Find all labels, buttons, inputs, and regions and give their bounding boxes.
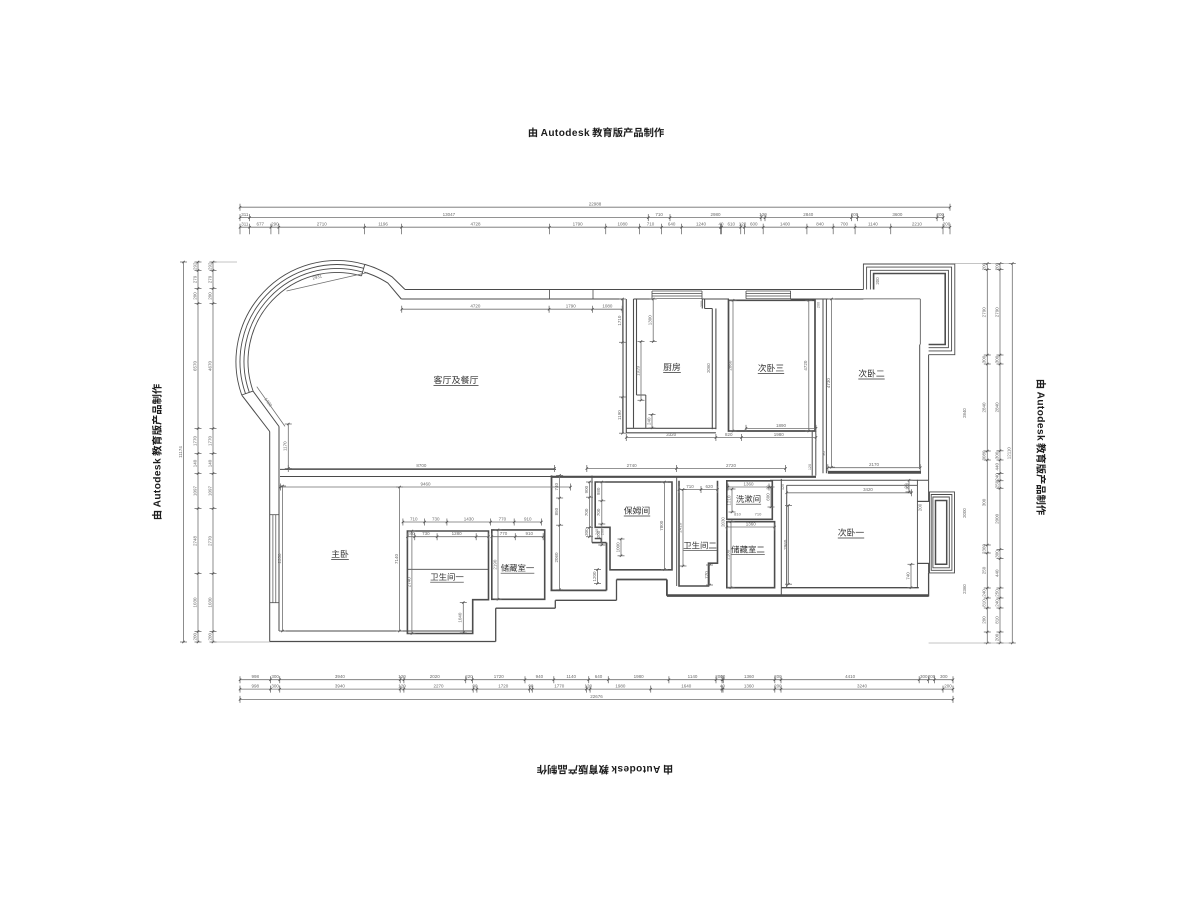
svg-text:440: 440: [994, 462, 999, 470]
svg-text:4720: 4720: [470, 304, 481, 309]
svg-text:90: 90: [472, 684, 478, 689]
svg-text:240: 240: [646, 417, 651, 425]
svg-text:4728: 4728: [470, 222, 481, 227]
svg-text:22676: 22676: [590, 694, 603, 699]
svg-text:1710: 1710: [617, 315, 622, 326]
svg-text:200: 200: [918, 503, 923, 511]
svg-text:120: 120: [398, 684, 406, 689]
svg-text:710: 710: [410, 516, 418, 521]
svg-text:1300: 1300: [648, 315, 653, 326]
svg-text:2350: 2350: [277, 553, 282, 564]
svg-text:600: 600: [750, 222, 758, 227]
svg-text:1640: 1640: [681, 684, 692, 689]
svg-text:90: 90: [821, 451, 826, 456]
svg-text:1140: 1140: [688, 674, 698, 679]
svg-text:640: 640: [595, 674, 603, 679]
svg-text:292: 292: [192, 262, 197, 270]
svg-text:998: 998: [251, 674, 259, 679]
svg-text:700: 700: [584, 508, 589, 516]
svg-text:13047: 13047: [443, 212, 456, 217]
svg-text:7140: 7140: [394, 553, 399, 564]
svg-text:240: 240: [982, 589, 987, 597]
svg-text:90: 90: [766, 486, 770, 490]
svg-text:200: 200: [774, 684, 782, 689]
svg-text:300: 300: [940, 674, 948, 679]
svg-text:120: 120: [584, 684, 592, 689]
svg-text:200: 200: [817, 302, 821, 308]
svg-text:1280: 1280: [452, 531, 463, 536]
svg-text:2060: 2060: [554, 552, 559, 563]
svg-text:120: 120: [808, 464, 812, 470]
svg-text:40: 40: [720, 684, 726, 689]
svg-text:200: 200: [936, 212, 944, 217]
svg-text:2170: 2170: [869, 462, 880, 467]
svg-text:200: 200: [207, 633, 212, 641]
svg-text:200: 200: [994, 633, 999, 641]
svg-text:300: 300: [994, 550, 999, 558]
svg-text:810: 810: [982, 599, 987, 607]
svg-text:700: 700: [596, 508, 601, 516]
svg-text:1000: 1000: [615, 542, 620, 553]
svg-text:2710: 2710: [317, 222, 328, 227]
svg-text:2860: 2860: [727, 360, 732, 371]
svg-text:1210: 1210: [726, 495, 731, 506]
svg-text:12110: 12110: [1007, 447, 1012, 460]
svg-text:2100: 2100: [725, 549, 730, 560]
svg-text:810: 810: [734, 512, 741, 517]
svg-text:2740: 2740: [627, 463, 638, 468]
svg-text:2720: 2720: [726, 463, 737, 468]
svg-text:1240: 1240: [696, 222, 707, 227]
svg-text:300: 300: [271, 684, 279, 689]
svg-text:250: 250: [994, 589, 999, 597]
svg-text:1080: 1080: [617, 222, 628, 227]
svg-text:300: 300: [994, 451, 999, 459]
svg-text:1200: 1200: [592, 571, 597, 582]
svg-text:1030: 1030: [207, 597, 212, 608]
svg-text:3080: 3080: [982, 450, 987, 461]
svg-text:710: 710: [755, 512, 762, 517]
svg-text:998: 998: [251, 684, 259, 689]
svg-text:3420: 3420: [863, 487, 873, 492]
svg-text:200: 200: [700, 301, 704, 307]
svg-text:610: 610: [727, 222, 735, 227]
svg-text:279: 279: [192, 275, 197, 283]
svg-text:3240: 3240: [857, 684, 868, 689]
svg-text:2210: 2210: [912, 222, 923, 227]
svg-text:1140: 1140: [868, 222, 878, 227]
svg-text:1360: 1360: [743, 481, 754, 486]
svg-text:1980: 1980: [634, 674, 645, 679]
svg-text:770: 770: [499, 516, 507, 521]
svg-text:40: 40: [720, 674, 726, 679]
svg-text:2840: 2840: [803, 212, 814, 217]
svg-text:200: 200: [774, 674, 782, 679]
svg-text:1770: 1770: [192, 435, 197, 446]
svg-text:1080: 1080: [602, 304, 613, 309]
svg-text:620: 620: [705, 484, 713, 489]
svg-text:40: 40: [718, 222, 724, 227]
svg-text:640: 640: [668, 222, 676, 227]
svg-text:740: 740: [905, 572, 910, 580]
svg-text:2360: 2360: [982, 543, 987, 554]
svg-text:770: 770: [704, 571, 709, 579]
svg-text:2000: 2000: [962, 508, 967, 518]
svg-text:2980: 2980: [710, 212, 721, 217]
svg-text:1770: 1770: [554, 684, 565, 689]
svg-text:2000: 2000: [994, 513, 999, 524]
svg-text:1720: 1720: [494, 674, 505, 679]
svg-text:200: 200: [875, 277, 880, 285]
svg-text:200: 200: [192, 292, 197, 300]
svg-text:1140: 1140: [566, 674, 576, 679]
svg-text:240: 240: [994, 473, 999, 481]
svg-text:2060: 2060: [706, 363, 711, 373]
svg-text:1920: 1920: [635, 365, 640, 376]
svg-text:22988: 22988: [589, 202, 602, 207]
svg-text:1790: 1790: [566, 304, 577, 309]
svg-text:810: 810: [994, 616, 999, 624]
svg-text:2360: 2360: [962, 584, 967, 594]
svg-text:677: 677: [256, 222, 264, 227]
svg-text:940: 940: [536, 674, 544, 679]
svg-text:240: 240: [994, 599, 999, 607]
svg-text:770: 770: [500, 531, 508, 536]
svg-text:820: 820: [725, 432, 733, 437]
svg-text:200: 200: [596, 530, 601, 538]
svg-text:440: 440: [994, 569, 999, 577]
svg-text:1360: 1360: [746, 521, 757, 526]
svg-text:200: 200: [943, 222, 951, 227]
svg-text:120: 120: [781, 484, 785, 490]
svg-text:300: 300: [982, 498, 987, 506]
svg-text:120: 120: [398, 674, 406, 679]
svg-text:910: 910: [524, 516, 532, 521]
svg-text:1040: 1040: [458, 612, 463, 623]
svg-text:2790: 2790: [982, 307, 987, 318]
svg-text:730: 730: [422, 531, 430, 536]
svg-text:140: 140: [207, 459, 212, 467]
svg-text:1030: 1030: [192, 597, 197, 608]
svg-text:3940: 3940: [335, 684, 346, 689]
svg-text:740: 740: [554, 482, 559, 490]
svg-text:710: 710: [655, 212, 663, 217]
svg-text:1980: 1980: [774, 432, 785, 437]
svg-text:4410: 4410: [845, 674, 856, 679]
svg-text:90: 90: [903, 483, 908, 489]
svg-text:2960: 2960: [783, 539, 788, 550]
svg-text:250: 250: [982, 566, 987, 574]
svg-text:1170: 1170: [283, 441, 288, 451]
svg-text:300: 300: [982, 355, 987, 363]
svg-text:3940: 3940: [335, 674, 346, 679]
svg-text:292: 292: [207, 262, 212, 270]
svg-text:120: 120: [739, 222, 747, 227]
svg-text:200: 200: [192, 633, 197, 641]
svg-text:2270: 2270: [433, 684, 444, 689]
svg-text:300: 300: [584, 528, 589, 536]
svg-text:1720: 1720: [498, 684, 509, 689]
svg-text:200: 200: [207, 292, 212, 300]
svg-text:Autodesk: Autodesk: [541, 128, 590, 139]
svg-text:90: 90: [528, 684, 534, 689]
svg-text:2190: 2190: [492, 559, 497, 570]
svg-text:1400: 1400: [780, 222, 791, 227]
svg-text:1770: 1770: [207, 435, 212, 446]
svg-text:200: 200: [944, 684, 952, 689]
svg-text:9460: 9460: [420, 481, 431, 486]
svg-text:1360: 1360: [744, 684, 755, 689]
svg-text:2790: 2790: [994, 307, 999, 318]
svg-text:11174: 11174: [178, 446, 183, 458]
svg-text:3600: 3600: [892, 212, 903, 217]
svg-text:200: 200: [982, 616, 987, 624]
svg-text:300: 300: [271, 674, 279, 679]
svg-text:140: 140: [192, 459, 197, 467]
svg-text:1790: 1790: [573, 222, 584, 227]
svg-text:910: 910: [525, 531, 533, 536]
svg-text:1097: 1097: [192, 485, 197, 496]
svg-text:2840: 2840: [962, 408, 967, 418]
svg-text:600: 600: [765, 493, 770, 501]
svg-text:311: 311: [241, 212, 249, 217]
svg-text:710: 710: [686, 484, 694, 489]
svg-text:Autodesk: Autodesk: [1034, 392, 1045, 441]
svg-text:2740: 2740: [406, 577, 411, 588]
svg-text:300: 300: [994, 355, 999, 363]
svg-text:279: 279: [207, 275, 212, 283]
svg-text:4720: 4720: [803, 360, 808, 371]
svg-text:8700: 8700: [416, 463, 427, 468]
svg-text:980: 980: [596, 487, 601, 495]
svg-text:3320: 3320: [666, 432, 677, 437]
svg-text:2840: 2840: [994, 402, 999, 413]
svg-text:311: 311: [241, 222, 249, 227]
svg-text:Autodesk: Autodesk: [611, 763, 660, 774]
svg-text:290: 290: [271, 222, 279, 227]
svg-text:1196: 1196: [378, 222, 388, 227]
svg-text:220: 220: [465, 674, 473, 679]
svg-text:2840: 2840: [982, 402, 987, 413]
svg-text:900: 900: [584, 485, 589, 493]
svg-text:6570: 6570: [192, 360, 197, 371]
svg-text:700: 700: [840, 222, 848, 227]
svg-text:710: 710: [647, 222, 655, 227]
svg-text:200: 200: [928, 674, 936, 679]
svg-text:2770: 2770: [207, 535, 212, 546]
svg-text:850: 850: [554, 507, 559, 515]
svg-text:1890: 1890: [776, 423, 787, 428]
svg-text:2748: 2748: [192, 535, 197, 546]
svg-text:250: 250: [994, 480, 999, 488]
svg-text:120: 120: [759, 212, 767, 217]
svg-text:1980: 1980: [615, 684, 626, 689]
svg-text:1360: 1360: [744, 674, 755, 679]
svg-text:4670: 4670: [207, 360, 212, 371]
svg-text:1190: 1190: [617, 410, 622, 420]
svg-text:1097: 1097: [207, 485, 212, 496]
svg-text:Autodesk: Autodesk: [153, 458, 164, 507]
svg-text:840: 840: [816, 222, 824, 227]
svg-text:7800: 7800: [659, 520, 664, 531]
svg-text:730: 730: [432, 516, 440, 521]
svg-text:1430: 1430: [464, 516, 475, 521]
svg-text:4730: 4730: [826, 378, 831, 389]
svg-text:2410: 2410: [677, 522, 682, 533]
svg-text:2030: 2030: [721, 517, 726, 527]
svg-text:2020: 2020: [430, 674, 441, 679]
svg-text:200: 200: [851, 212, 859, 217]
